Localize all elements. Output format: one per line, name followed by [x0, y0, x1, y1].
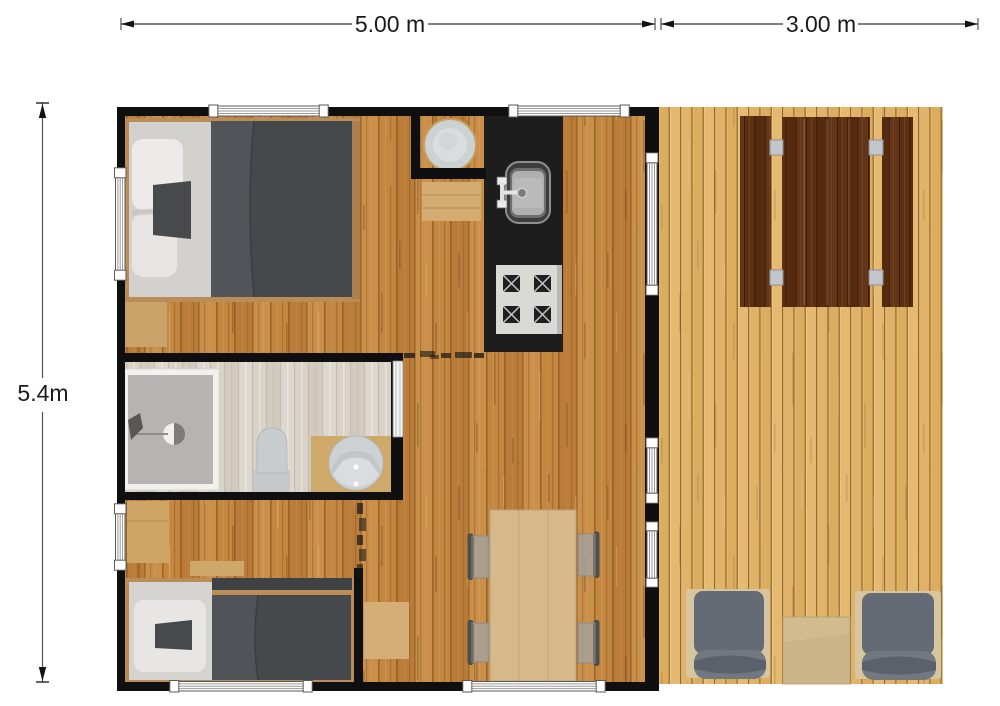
svg-text:5.00 m: 5.00 m	[355, 11, 425, 37]
svg-text:5.4m: 5.4m	[17, 380, 68, 406]
svg-text:3.00 m: 3.00 m	[786, 11, 856, 37]
